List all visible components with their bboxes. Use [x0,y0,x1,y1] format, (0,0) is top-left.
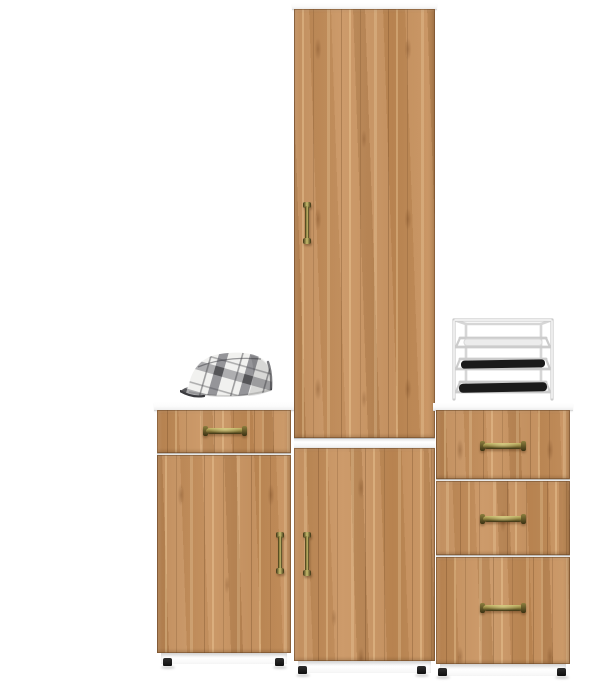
tall-cabinet-foot-right [417,666,426,674]
left-cabinet-drawer-handle [203,426,247,436]
handle-shaft [305,536,309,572]
right-cabinet-drawer-3 [436,557,570,664]
left-cabinet [154,402,294,668]
right-cabinet-foot-right [557,668,566,676]
right-cabinet-drawer-1-handle [480,441,526,451]
foot-shadow [555,676,569,679]
handle-shaft [278,536,282,570]
foot-shadow [415,674,429,677]
rack-shoes-bottom [459,382,547,393]
handle-shaft [305,206,309,240]
left-cabinet-plinth [161,653,287,664]
tall-cabinet-upper-door-handle [303,202,311,244]
right-cabinet-foot-left [438,668,447,676]
tall-cabinet-lower-door [294,448,435,661]
tall-cabinet-foot-left [298,666,307,674]
plaid-cap [180,345,278,403]
right-cabinet-plinth [440,664,566,676]
left-cabinet-foot-right [275,658,284,666]
handle-bar [483,605,523,611]
left-cabinet-drawer-front [157,410,291,453]
handle-bar [483,443,523,449]
left-cabinet-door-handle [276,532,284,574]
tall-cabinet-plinth [298,661,431,673]
handle-bar [206,428,244,434]
rack-tray-1-item [464,339,542,346]
right-cabinet-drawer-2-handle [480,514,526,524]
handle-bar [483,516,523,522]
foot-shadow [273,666,287,669]
left-cabinet-foot-left [163,658,172,666]
right-cabinet-drawer-3-handle [480,603,526,613]
foot-shadow [436,676,450,679]
foot-shadow [161,666,175,669]
tall-cabinet-lower-door-handle [303,532,311,576]
rack-shoes-middle [461,359,545,368]
shoe-rack [448,312,558,402]
right-cabinet [433,403,573,677]
right-cabinet-drawer-1 [436,410,570,479]
right-cabinet-drawer-2 [436,481,570,555]
left-cabinet-door [157,455,291,653]
product-photo-scene [0,0,609,700]
tall-cabinet [292,3,437,676]
foot-shadow [296,674,310,677]
tall-cabinet-upper-door [294,9,435,438]
